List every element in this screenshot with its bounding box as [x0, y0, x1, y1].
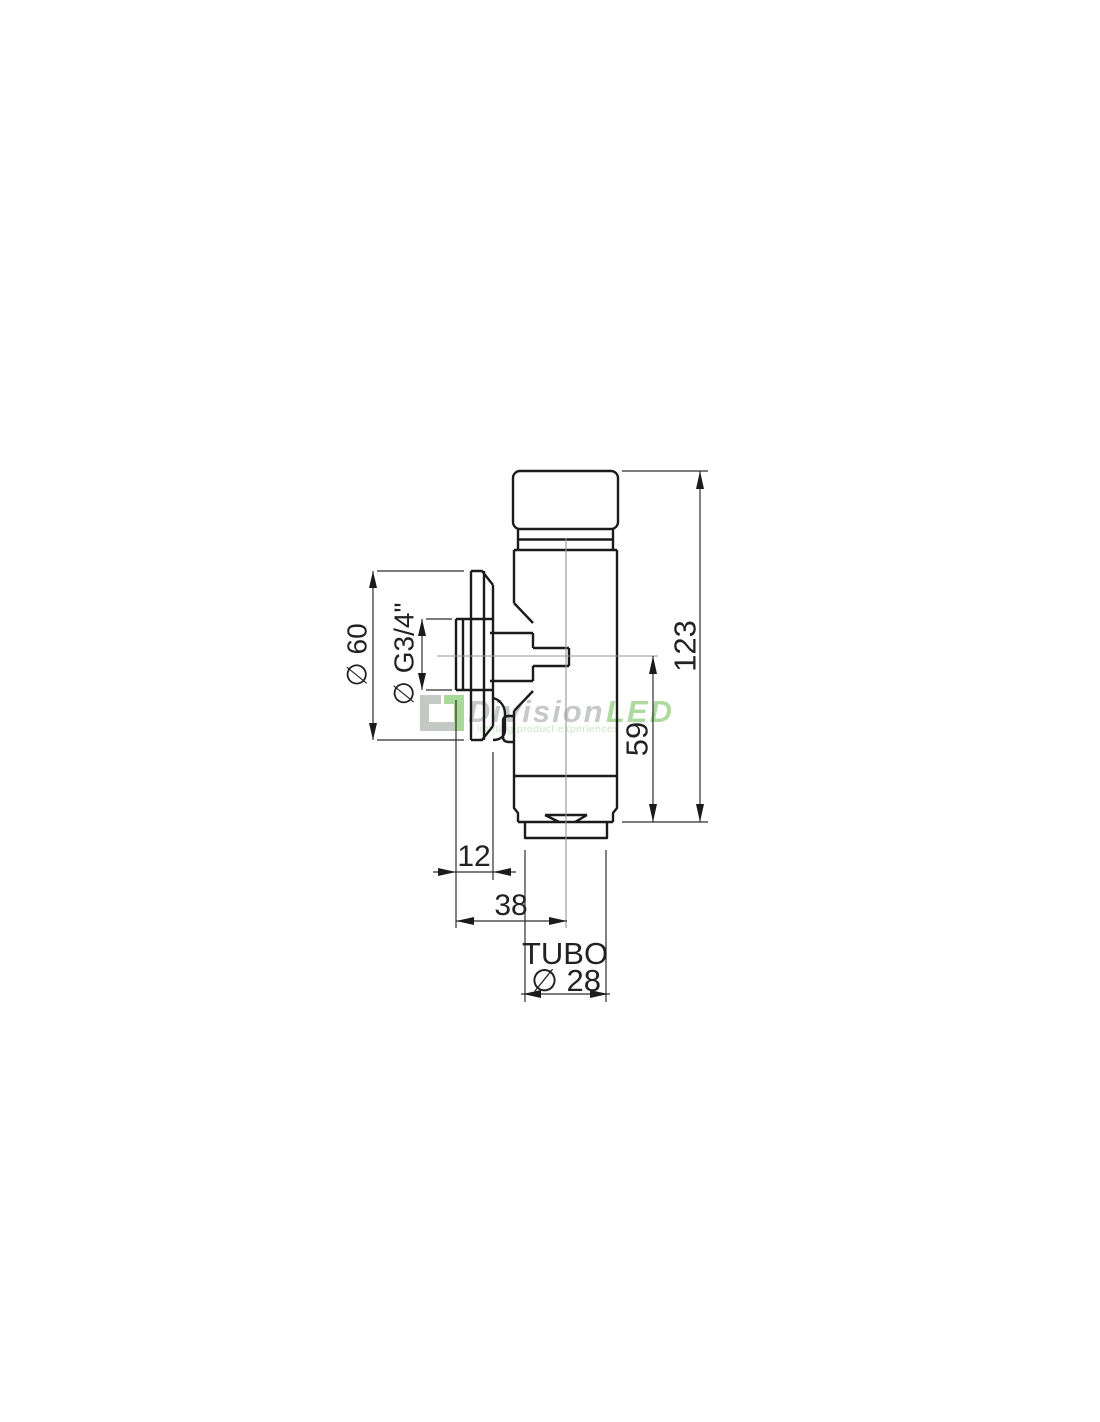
dimension-total-height: 123 [622, 471, 708, 822]
arrowhead-up-icon [696, 471, 704, 489]
push-button-cap [513, 471, 618, 529]
arrowhead-right-icon [438, 868, 456, 876]
technical-drawing: Division LED lighting product experience… [0, 0, 1100, 1422]
dim-label-outlet-height: 59 [620, 722, 655, 756]
valve-outline [456, 471, 618, 838]
inlet-hex-nut [490, 633, 569, 681]
dim-lines-g34 [422, 619, 452, 690]
arrowhead-down-icon [649, 804, 657, 822]
arrowhead-up-icon [649, 656, 657, 674]
arrowhead-left-icon [456, 917, 474, 925]
arrowhead-right-icon [549, 917, 567, 925]
arrowhead-down-icon [369, 723, 377, 740]
brand-tagline: lighting product experiences [477, 723, 619, 735]
dimension-thread-size: ∅ G3/4" [389, 603, 453, 706]
arrowhead-up-icon [369, 571, 377, 588]
dim-label-tube-diameter: ∅ 28 [531, 963, 601, 998]
dim-label-thread-size: ∅ G3/4" [389, 603, 420, 706]
threaded-inlet-spigot [456, 619, 493, 690]
dim-label-wall-to-axis: 38 [494, 889, 527, 922]
dim-label-total-height: 123 [668, 620, 703, 672]
dimension-outlet-height: 59 [620, 656, 658, 822]
arrowhead-down-icon [696, 804, 704, 822]
drawing-canvas: Division LED lighting product experience… [0, 0, 1100, 1422]
dim-label-flange-diameter: ∅ 60 [342, 623, 373, 686]
arrowhead-left-icon [493, 868, 511, 876]
dim-label-spigot-offset: 12 [457, 840, 490, 873]
dimension-wall-to-axis: 38 [456, 889, 567, 925]
